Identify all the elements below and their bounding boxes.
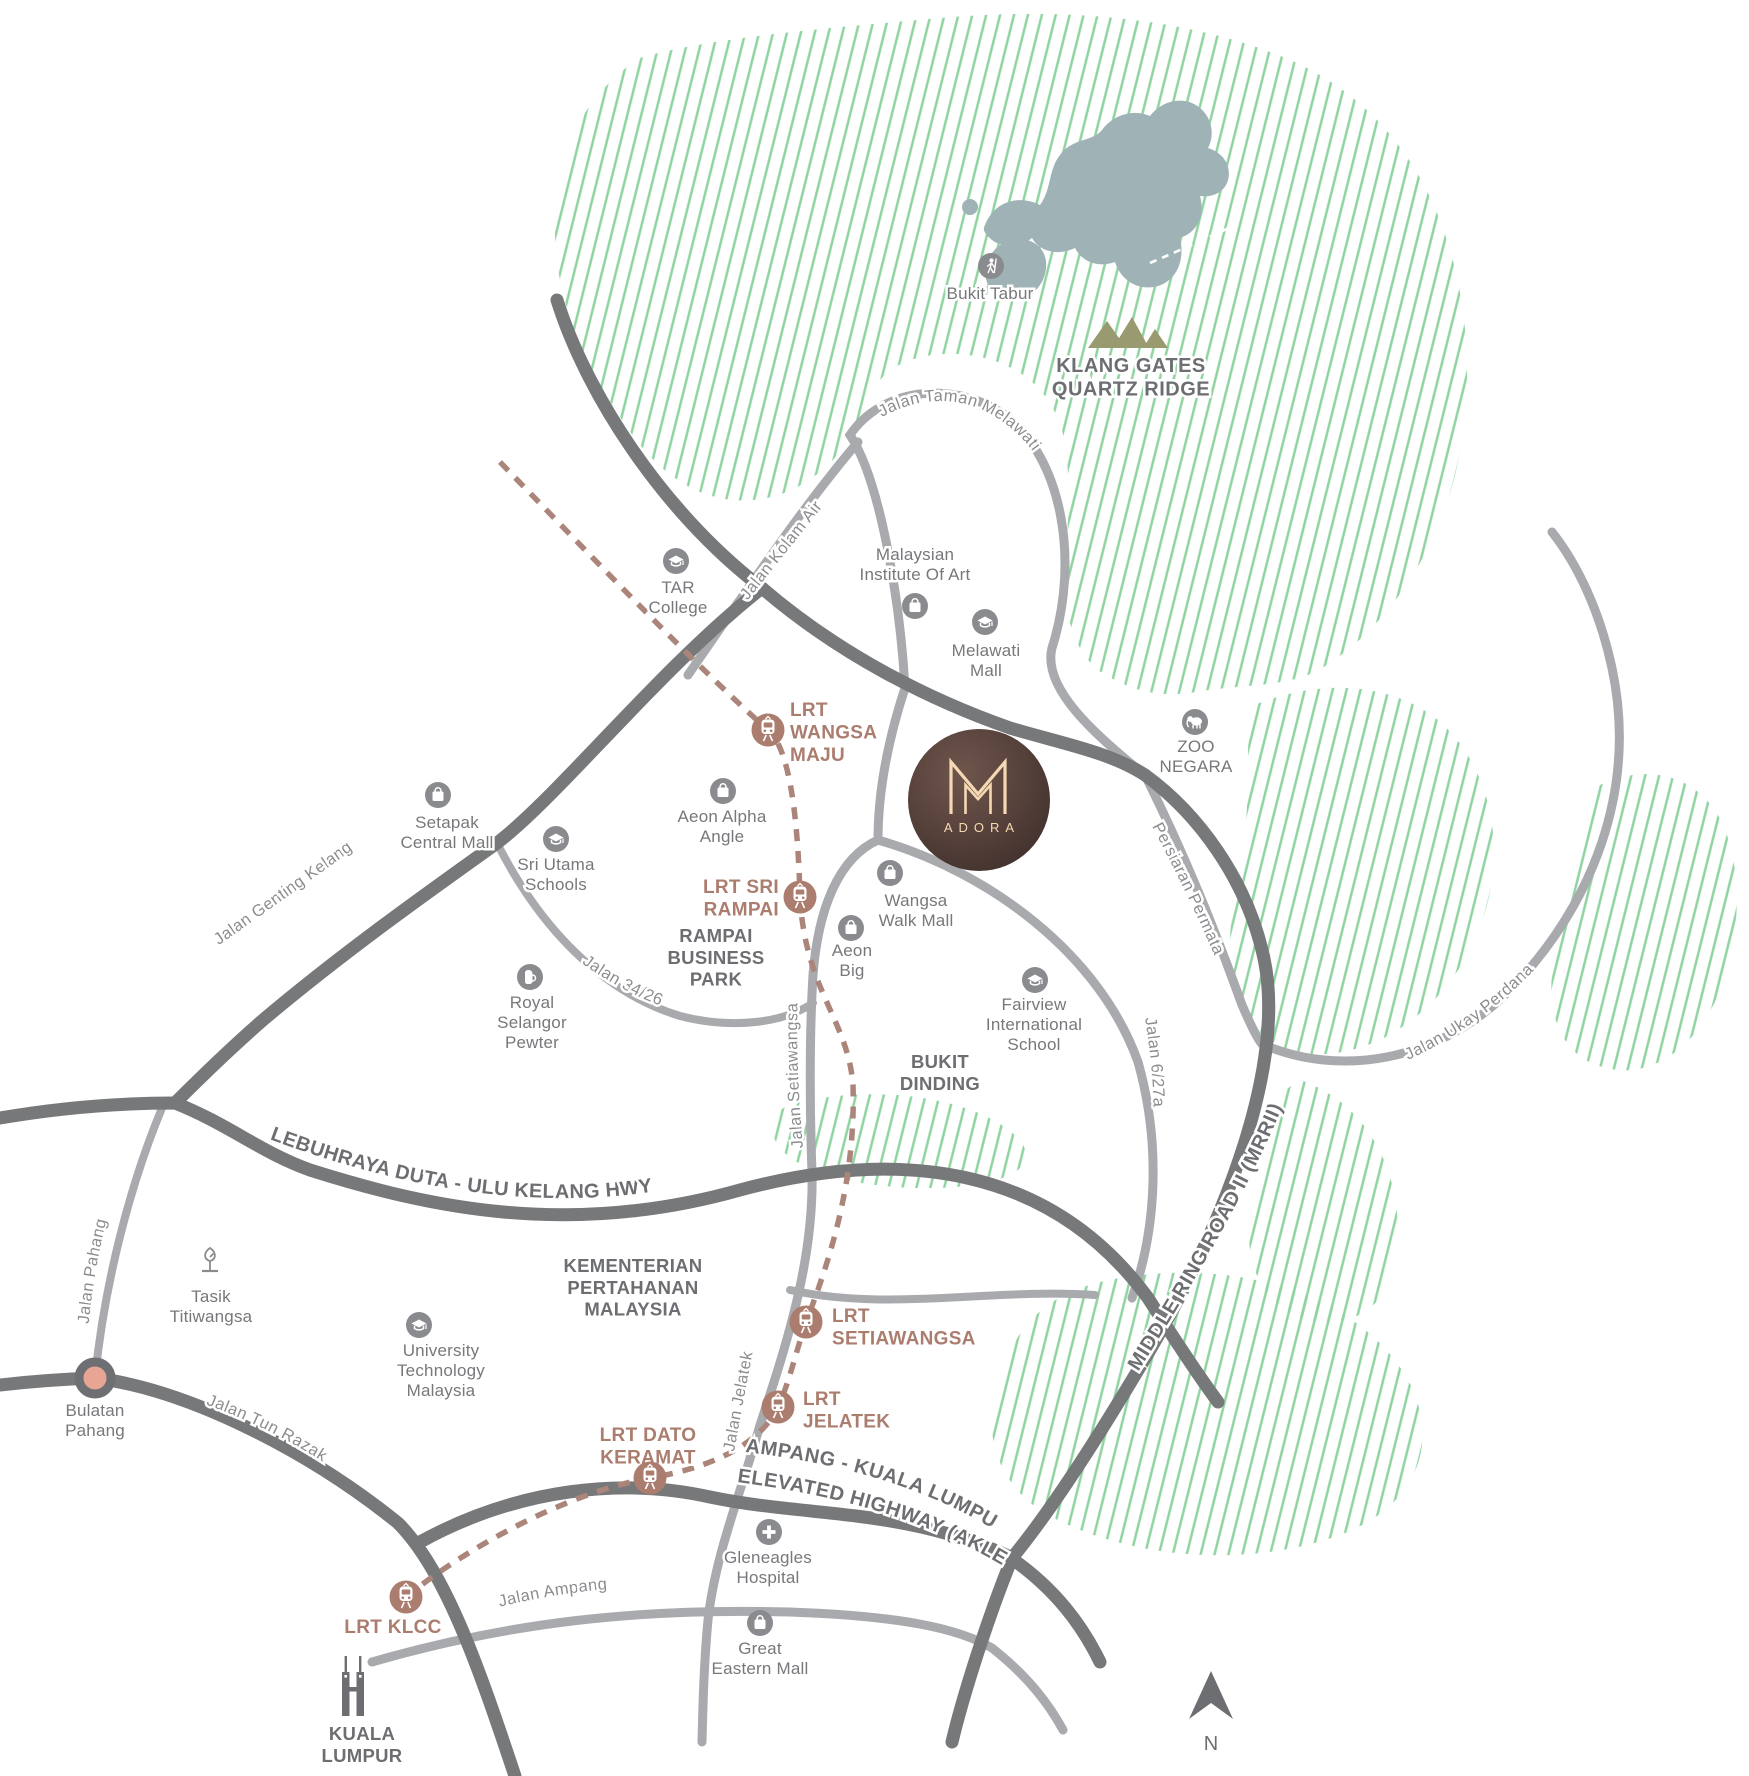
train-icon [752, 714, 785, 747]
north-arrow-icon [1189, 1671, 1233, 1719]
lrt-jelatek-label: LRTJELATEK [803, 1389, 890, 1432]
road-label-tun-razak: Jalan Tun Razak [204, 1391, 330, 1465]
klang-gates-label: KLANG GATESQUARTZ RIDGE [1052, 355, 1210, 401]
road-east-link [790, 1290, 1095, 1300]
zoo-negara-label: ZOONEGARA [1160, 737, 1233, 776]
project-marker-m-adora: ADORA [908, 729, 1050, 871]
sri-utama-schools-label: Sri UtamaSchools [517, 855, 595, 894]
graduation-cap-icon [972, 609, 998, 635]
train-icon [762, 1391, 795, 1424]
road-label-jalan-ampang: Jalan Ampang [497, 1575, 609, 1611]
lake-pond [962, 199, 978, 215]
graduation-cap-icon [1022, 967, 1048, 993]
shopping-bag-icon [838, 915, 864, 941]
shopping-bag-icon [877, 860, 903, 886]
graduation-cap-icon [543, 826, 569, 852]
tankard-icon [517, 964, 543, 990]
setapak-central-mall-label: SetapakCentral Mall [400, 813, 493, 852]
bulatan-pahang-label: BulatanPahang [65, 1401, 125, 1440]
kementerian-label: KEMENTERIANPERTAHANANMALAYSIA [564, 1255, 703, 1320]
malaysian-institute-of-art-label: MalaysianInstitute Of Art [860, 545, 971, 584]
petronas-towers-icon [342, 1656, 364, 1716]
great-eastern-mall-label: GreatEastern Mall [712, 1639, 809, 1678]
university-technology-malaysia-label: UniversityTechnologyMalaysia [397, 1341, 485, 1400]
aeon-alpha-angle-label: Aeon AlphaAngle [678, 807, 767, 846]
svg-text:Jalan Kolam Air: Jalan Kolam Air [737, 497, 826, 603]
royal-selangor-pewter-label: RoyalSelangorPewter [497, 993, 567, 1052]
svg-text:LEBUHRAYA DUTA - ULU KELANG HW: LEBUHRAYA DUTA - ULU KELANG HWY [268, 1123, 654, 1203]
shopping-bag-icon [747, 1610, 773, 1636]
road-label-kolam-air: Jalan Kolam Air [737, 497, 826, 603]
svg-text:Jalan Taman Melawati: Jalan Taman Melawati [875, 387, 1044, 454]
tar-college-label: TARCollege [648, 578, 707, 617]
aeon-big-label: AeonBig [832, 941, 873, 980]
shopping-bag-icon [710, 778, 736, 804]
bukit-tabur-label: Bukit Tabur [947, 284, 1034, 303]
project-name-label: ADORA [944, 820, 1020, 835]
graduation-cap-icon [406, 1312, 432, 1338]
map-canvas: Jalan Taman Melawati Jalan Kolam Air Jal… [0, 0, 1749, 1776]
lrt-setiawangsa-label: LRTSETIAWANGSA [832, 1306, 976, 1349]
tree-icon [202, 1248, 218, 1271]
bukit-dinding-label: BUKITDINDING [900, 1051, 980, 1094]
location-map: Jalan Taman Melawati Jalan Kolam Air Jal… [0, 0, 1749, 1776]
medical-cross-icon [756, 1519, 782, 1545]
train-icon [790, 1306, 823, 1339]
wangsa-walk-mall-label: WangsaWalk Mall [879, 891, 954, 930]
shopping-bag-icon [902, 593, 928, 619]
svg-text:Jalan 34/26: Jalan 34/26 [579, 952, 665, 1010]
road-label-taman-melawati: Jalan Taman Melawati [875, 387, 1044, 454]
road-label-lebuhraya-duta: LEBUHRAYA DUTA - ULU KELANG HWY [268, 1123, 654, 1203]
fairview-international-school-label: FairviewInternationalSchool [986, 995, 1082, 1054]
project-marker-circle [908, 729, 1050, 871]
hiker-icon [978, 253, 1004, 279]
svg-text:Jalan Tun Razak: Jalan Tun Razak [204, 1391, 330, 1465]
bulatan-pahang-roundabout [79, 1362, 111, 1394]
road-label-34-26: Jalan 34/26 [579, 952, 665, 1010]
lrt-sri-rampai-label: LRT SRIRAMPAI [703, 877, 779, 920]
svg-text:Jalan Genting Kelang: Jalan Genting Kelang [211, 838, 356, 949]
train-icon [634, 1462, 667, 1495]
road-wangsa-link [878, 688, 905, 840]
shopping-bag-icon [425, 782, 451, 808]
tasik-titiwangsa-label: TasikTitiwangsa [170, 1287, 253, 1326]
train-icon [390, 1581, 423, 1614]
lrt-wangsa-maju-label: LRTWANGSAMAJU [790, 700, 877, 766]
gleneagles-hospital-label: GleneaglesHospital [724, 1548, 812, 1587]
kuala-lumpur-label: KUALALUMPUR [322, 1723, 403, 1766]
graduation-cap-icon [663, 548, 689, 574]
train-icon [784, 881, 817, 914]
forest-area-east-outer [1551, 774, 1736, 1070]
compass: N [1189, 1671, 1233, 1755]
svg-text:Jalan Ampang: Jalan Ampang [497, 1575, 609, 1611]
road-label-genting-kelang: Jalan Genting Kelang [211, 838, 356, 949]
melawati-mall-label: MelawatiMall [952, 641, 1021, 680]
lrt-klcc-label: LRT KLCC [344, 1617, 441, 1638]
rampai-business-park-label: RAMPAIBUSINESSPARK [668, 925, 765, 990]
animal-icon [1182, 709, 1208, 735]
north-label: N [1204, 1733, 1218, 1755]
